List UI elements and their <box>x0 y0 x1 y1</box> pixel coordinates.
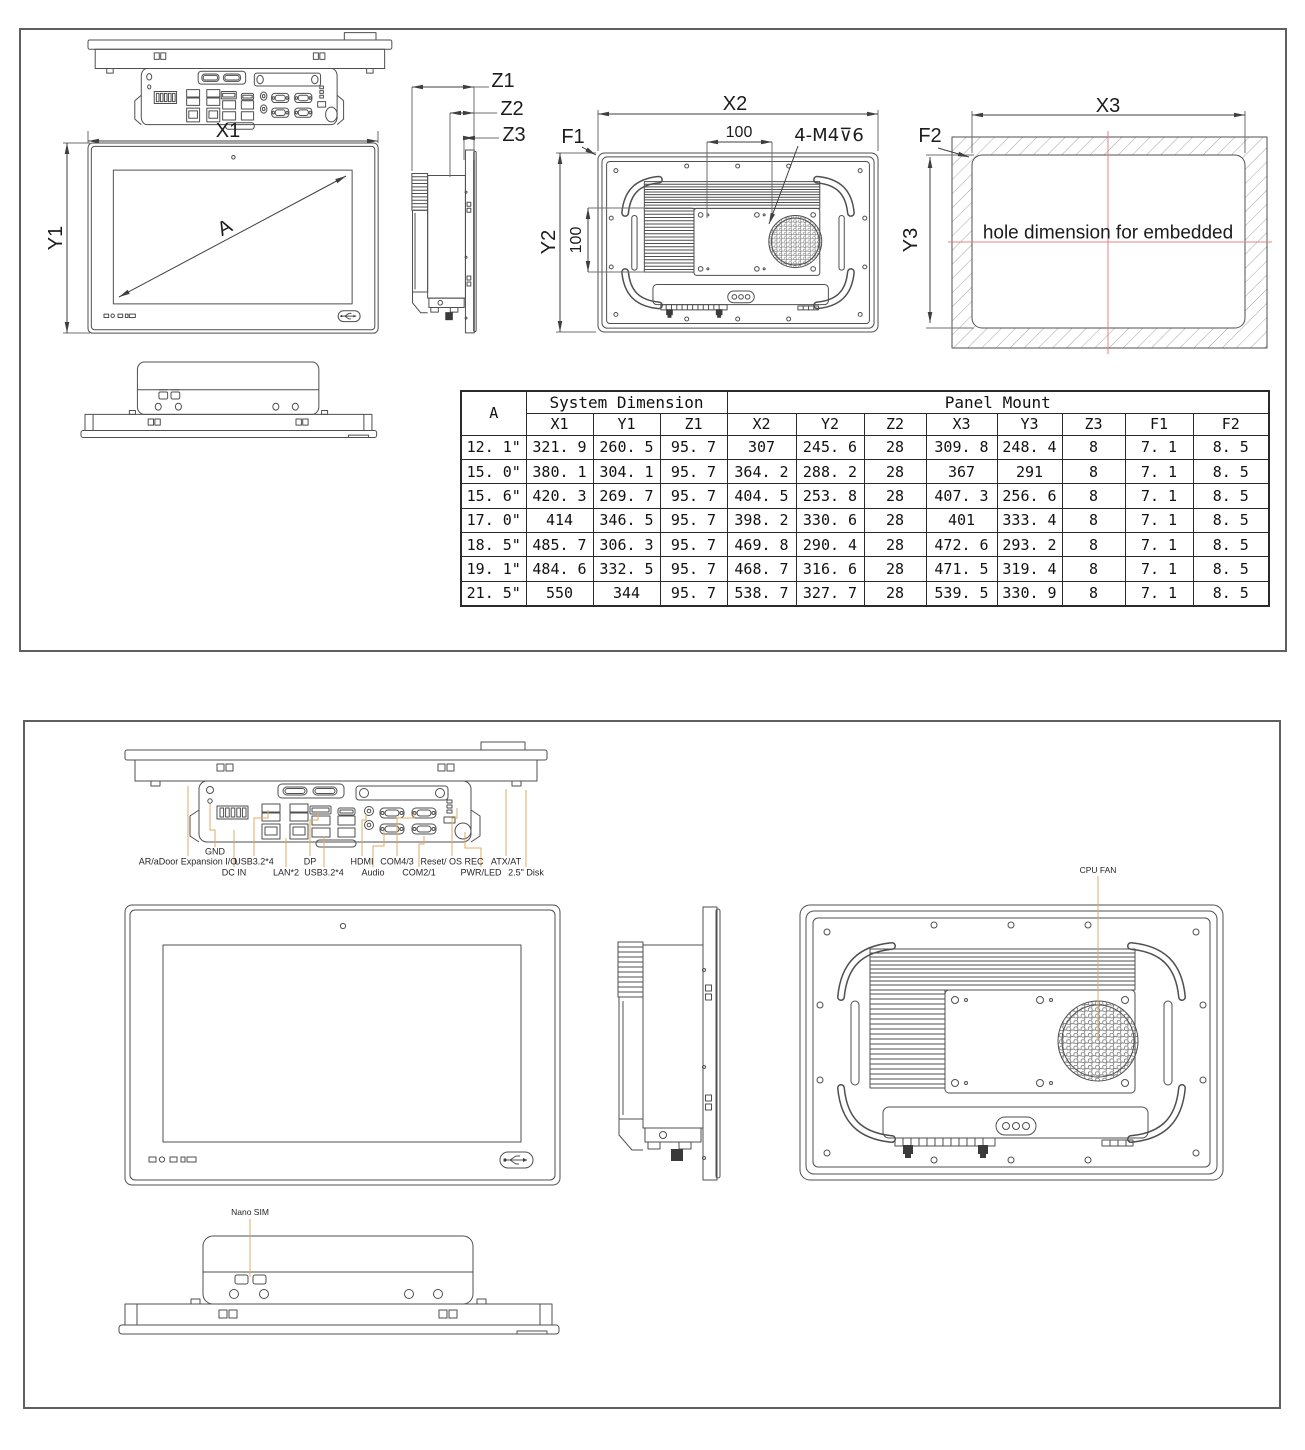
table-row: 15. 0" 380. 1 304. 1 95. 7 364. 2 288. 2… <box>461 459 1269 483</box>
col-header: X2 <box>727 413 796 435</box>
dim-cell: 8. 5 <box>1193 533 1269 557</box>
dim-cell: 330. 6 <box>796 508 864 532</box>
table-row: 15. 6" 420. 3 269. 7 95. 7 404. 5 253. 8… <box>461 484 1269 508</box>
table-row: 17. 0" 414 346. 5 95. 7 398. 2 330. 6 28… <box>461 508 1269 532</box>
dim-cell: 7. 1 <box>1125 533 1193 557</box>
dim-cell: 290. 4 <box>796 533 864 557</box>
dim-label-x1: X1 <box>216 121 240 141</box>
port-label-lan: LAN*2 <box>273 869 299 878</box>
port-label-25-disk: 2.5" Disk <box>508 869 544 878</box>
dim-cell: 8. 5 <box>1193 435 1269 459</box>
s1-bottom-view <box>81 362 377 437</box>
dim-cell: 8 <box>1062 484 1125 508</box>
dim-cell: 28 <box>864 533 926 557</box>
dim-label-vesa-100-horizontal: 100 <box>726 125 753 141</box>
dim-cell: 95. 7 <box>660 484 727 508</box>
dim-cell: 307 <box>727 435 796 459</box>
size-cell: 17. 0" <box>461 508 526 532</box>
s1-front-view <box>88 143 378 333</box>
dim-cell: 398. 2 <box>727 508 796 532</box>
dim-cell: 8 <box>1062 557 1125 581</box>
dim-cell: 8. 5 <box>1193 581 1269 605</box>
dim-cell: 8 <box>1062 435 1125 459</box>
dim-cell: 28 <box>864 557 926 581</box>
port-label-com4-3: COM4/3 <box>380 858 414 867</box>
dim-label-z3: Z3 <box>502 125 525 145</box>
s1-side-view <box>412 150 476 333</box>
dim-cell: 420. 3 <box>526 484 593 508</box>
dim-cell: 472. 6 <box>926 533 997 557</box>
dim-cell: 8 <box>1062 581 1125 605</box>
dim-label-x2: X2 <box>723 94 747 114</box>
dim-label-f1: F1 <box>561 127 584 147</box>
port-label-atx-at: ATX/AT <box>491 858 521 867</box>
port-label-reset-os-rec: Reset/ OS REC <box>420 858 483 867</box>
dim-label-thread-4-m4: 4-M4⊽6 <box>794 127 864 145</box>
col-header: X1 <box>526 413 593 435</box>
dim-cell: 404. 5 <box>727 484 796 508</box>
col-header: Z2 <box>864 413 926 435</box>
size-cell: 15. 6" <box>461 484 526 508</box>
cpu-fan-label: CPU FAN <box>1080 866 1117 875</box>
dim-cell: 293. 2 <box>997 533 1062 557</box>
dim-cell: 8 <box>1062 533 1125 557</box>
port-label-dp: DP <box>304 858 317 867</box>
dim-cell: 8. 5 <box>1193 484 1269 508</box>
s1-rear-view <box>598 153 878 332</box>
port-label-usb32-top: USB3.2*4 <box>234 858 274 867</box>
table-row: 18. 5" 485. 7 306. 3 95. 7 469. 8 290. 4… <box>461 533 1269 557</box>
dim-cell: 346. 5 <box>593 508 660 532</box>
port-label-usb32-bottom: USB3.2*4 <box>304 869 344 878</box>
size-cell: 15. 0" <box>461 459 526 483</box>
dim-cell: 316. 6 <box>796 557 864 581</box>
col-header: Z3 <box>1062 413 1125 435</box>
spec-sheet-page: X1 Y1 A Z1 Z2 Z3 X2 100 4-M4⊽6 F1 Y2 100… <box>0 0 1305 1450</box>
dim-label-z1: Z1 <box>491 71 514 91</box>
dim-cell: 484. 6 <box>526 557 593 581</box>
dim-cell: 327. 7 <box>796 581 864 605</box>
port-label-gnd: GND <box>205 848 225 857</box>
dim-cell: 8. 5 <box>1193 459 1269 483</box>
dim-cell: 407. 3 <box>926 484 997 508</box>
dim-cell: 7. 1 <box>1125 557 1193 581</box>
dim-cell: 414 <box>526 508 593 532</box>
s2-top-view <box>119 1236 559 1334</box>
size-cell: 12. 1" <box>461 435 526 459</box>
nano-sim-label: Nano SIM <box>231 1208 269 1217</box>
dim-label-y3: Y3 <box>901 228 921 252</box>
dim-cell: 330. 9 <box>997 581 1062 605</box>
size-cell: 19. 1" <box>461 557 526 581</box>
dim-cell: 95. 7 <box>660 508 727 532</box>
table-corner-header: A <box>461 391 526 435</box>
table-row: 19. 1" 484. 6 332. 5 95. 7 468. 7 316. 6… <box>461 557 1269 581</box>
dim-label-x3: X3 <box>1096 96 1120 116</box>
dim-cell: 321. 9 <box>526 435 593 459</box>
dim-cell: 95. 7 <box>660 533 727 557</box>
dim-cell: 471. 5 <box>926 557 997 581</box>
table-row: 21. 5" 550 344 95. 7 538. 7 327. 7 28 53… <box>461 581 1269 605</box>
dim-cell: 380. 1 <box>526 459 593 483</box>
table-group-header-row: A System Dimension Panel Mount <box>461 391 1269 413</box>
s2-side-view <box>618 907 720 1180</box>
dim-cell: 95. 7 <box>660 435 727 459</box>
col-header: Z1 <box>660 413 727 435</box>
dim-cell: 319. 4 <box>997 557 1062 581</box>
dim-label-y2: Y2 <box>539 230 559 254</box>
port-label-hdmi: HDMI <box>351 858 374 867</box>
dim-cell: 28 <box>864 484 926 508</box>
hole-dimension-note: hole dimension for embedded <box>983 224 1233 243</box>
dim-cell: 260. 5 <box>593 435 660 459</box>
col-header: F1 <box>1125 413 1193 435</box>
dimension-table: A System Dimension Panel Mount X1 Y1 Z1 … <box>460 390 1270 607</box>
dim-cell: 309. 8 <box>926 435 997 459</box>
dim-cell: 269. 7 <box>593 484 660 508</box>
dim-cell: 7. 1 <box>1125 581 1193 605</box>
port-label-dc-in: DC IN <box>222 869 247 878</box>
s2-front-view <box>125 905 560 1185</box>
dim-cell: 248. 4 <box>997 435 1062 459</box>
dim-cell: 539. 5 <box>926 581 997 605</box>
dim-cell: 28 <box>864 508 926 532</box>
dim-cell: 253. 8 <box>796 484 864 508</box>
dim-cell: 7. 1 <box>1125 459 1193 483</box>
dim-cell: 538. 7 <box>727 581 796 605</box>
dim-cell: 28 <box>864 581 926 605</box>
size-cell: 18. 5" <box>461 533 526 557</box>
dim-label-f2: F2 <box>918 126 941 146</box>
dim-cell: 95. 7 <box>660 557 727 581</box>
dim-cell: 306. 3 <box>593 533 660 557</box>
dim-cell: 304. 1 <box>593 459 660 483</box>
dim-cell: 7. 1 <box>1125 508 1193 532</box>
technical-drawing-canvas <box>0 0 1305 1450</box>
group-header-panel-mount: Panel Mount <box>727 391 1269 413</box>
dim-cell: 8. 5 <box>1193 557 1269 581</box>
col-header: Y2 <box>796 413 864 435</box>
size-cell: 21. 5" <box>461 581 526 605</box>
dim-cell: 7. 1 <box>1125 435 1193 459</box>
port-label-com2-1: COM2/1 <box>402 869 436 878</box>
port-label-audio: Audio <box>361 869 384 878</box>
dim-cell: 291 <box>997 459 1062 483</box>
dim-cell: 550 <box>526 581 593 605</box>
dim-cell: 28 <box>864 459 926 483</box>
dim-cell: 364. 2 <box>727 459 796 483</box>
dim-cell: 7. 1 <box>1125 484 1193 508</box>
dim-label-z2: Z2 <box>500 99 523 119</box>
dim-cell: 344 <box>593 581 660 605</box>
table-column-header-row: X1 Y1 Z1 X2 Y2 Z2 X3 Y3 Z3 F1 F2 <box>461 413 1269 435</box>
dim-cell: 469. 8 <box>727 533 796 557</box>
sheet2-views <box>119 742 1223 1334</box>
port-label-ar-adoor-expansion: AR/aDoor Expansion I/O <box>139 858 238 867</box>
col-header: F2 <box>1193 413 1269 435</box>
table-row: 12. 1" 321. 9 260. 5 95. 7 307 245. 6 28… <box>461 435 1269 459</box>
port-label-pwr-led: PWR/LED <box>460 869 501 878</box>
dim-cell: 28 <box>864 435 926 459</box>
s2-rear-view <box>800 905 1223 1180</box>
s1-top-io-view <box>88 33 392 130</box>
group-header-system-dimension: System Dimension <box>526 391 727 413</box>
dim-cell: 8 <box>1062 508 1125 532</box>
dim-cell: 95. 7 <box>660 459 727 483</box>
dim-cell: 256. 6 <box>997 484 1062 508</box>
dim-cell: 95. 7 <box>660 581 727 605</box>
dim-cell: 8. 5 <box>1193 508 1269 532</box>
dim-cell: 8 <box>1062 459 1125 483</box>
dim-cell: 468. 7 <box>727 557 796 581</box>
col-header: X3 <box>926 413 997 435</box>
dim-cell: 401 <box>926 508 997 532</box>
dim-cell: 288. 2 <box>796 459 864 483</box>
dim-cell: 485. 7 <box>526 533 593 557</box>
dim-cell: 245. 6 <box>796 435 864 459</box>
col-header: Y3 <box>997 413 1062 435</box>
dim-cell: 367 <box>926 459 997 483</box>
col-header: Y1 <box>593 413 660 435</box>
dim-cell: 333. 4 <box>997 508 1062 532</box>
dim-label-vesa-100-vertical: 100 <box>569 227 585 254</box>
dim-cell: 332. 5 <box>593 557 660 581</box>
dim-label-y1: Y1 <box>46 226 66 250</box>
